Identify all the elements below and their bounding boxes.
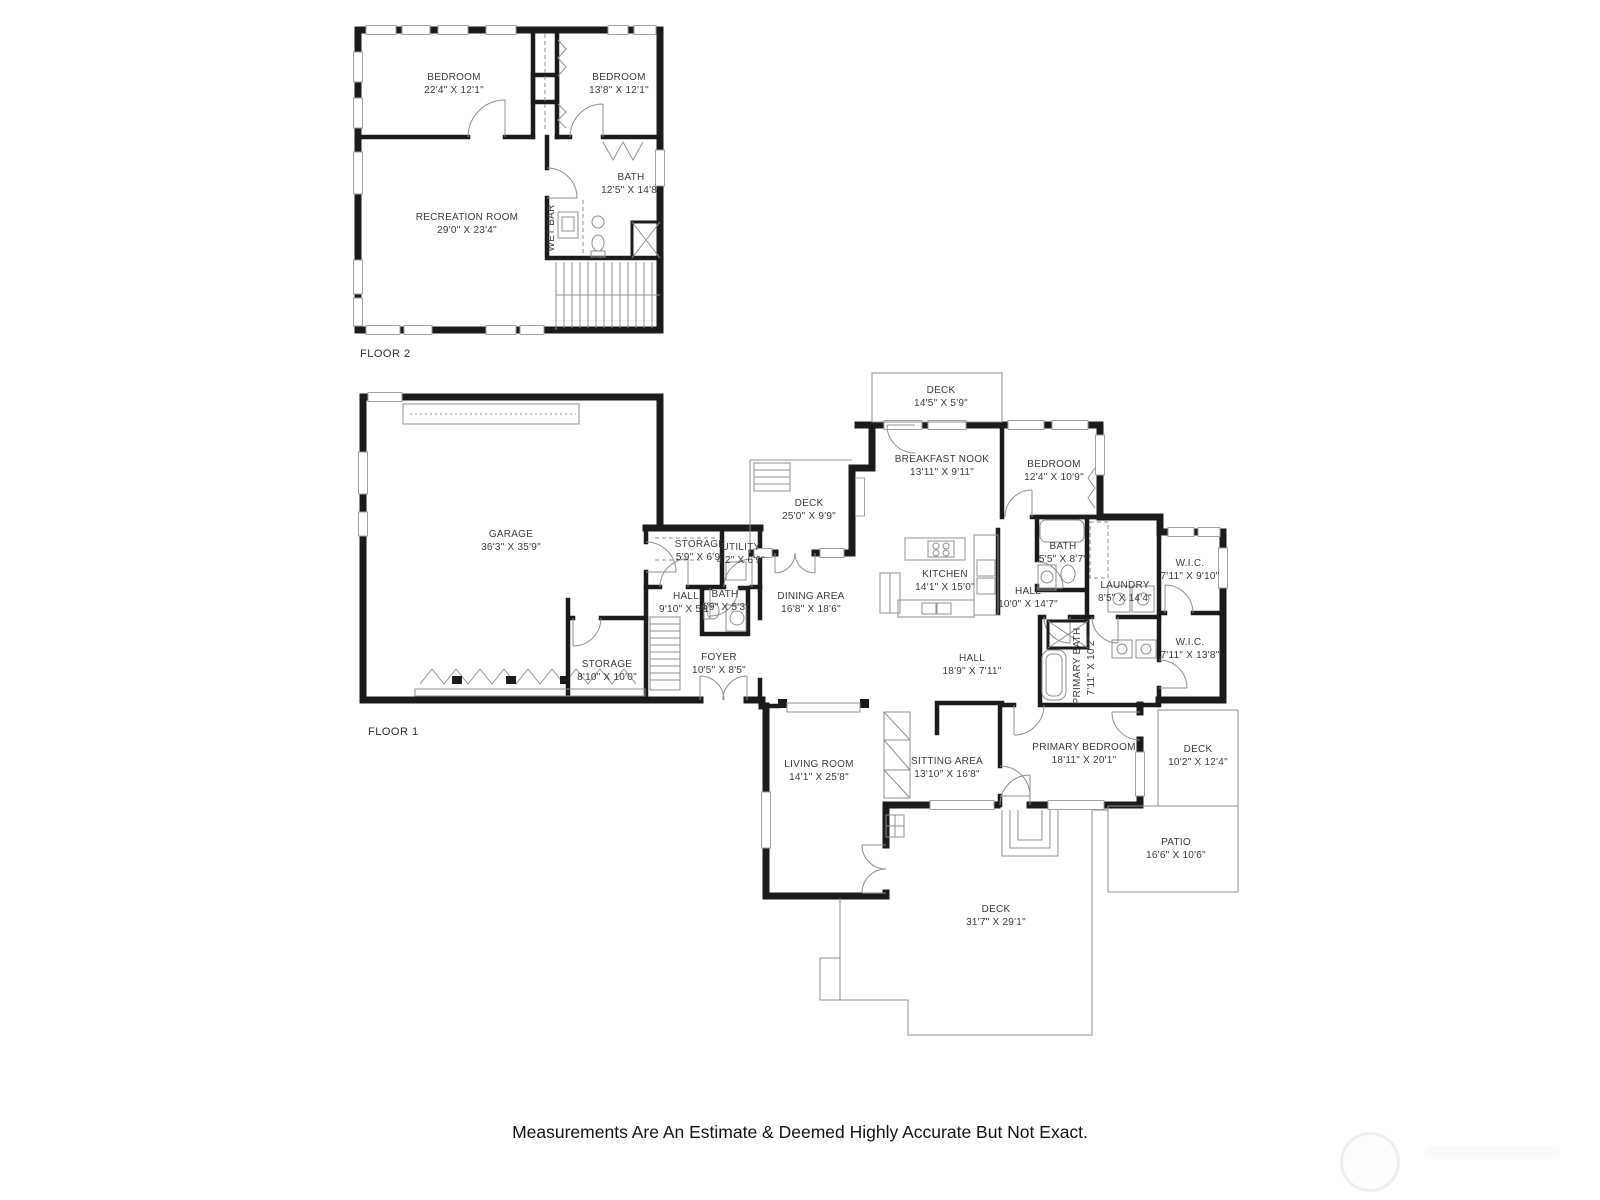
- room-label-bath-hall: BATH5'5" X 8'7": [1039, 541, 1087, 565]
- svg-text:7'11" X 9'10": 7'11" X 9'10": [1160, 571, 1219, 582]
- svg-text:18'11" X 20'1": 18'11" X 20'1": [1052, 755, 1117, 766]
- room-label-bedroom-large: BEDROOM22'4" X 12'1": [424, 72, 484, 96]
- svg-text:22'4" X 12'1": 22'4" X 12'1": [424, 85, 484, 96]
- room-label-primary-bath: PRIMARY BATH7'11" X 10'2": [1072, 628, 1097, 705]
- svg-text:PATIO: PATIO: [1161, 837, 1191, 848]
- room-label-primary-bedroom: PRIMARY BEDROOM18'11" X 20'1": [1032, 742, 1135, 766]
- svg-text:36'3" X 35'9": 36'3" X 35'9": [481, 542, 541, 553]
- floor2-label: FLOOR 2: [360, 348, 411, 360]
- room-label-foyer: FOYER10'5" X 8'5": [692, 652, 746, 676]
- room-label-wic-bottom: W.I.C.7'11" X 13'8": [1160, 637, 1219, 661]
- floor1-label: FLOOR 1: [368, 726, 419, 738]
- svg-text:7'11" X 10'2": 7'11" X 10'2": [1086, 636, 1097, 695]
- room-label-storage-garage: STORAGE8'10" X 10'0": [577, 659, 637, 683]
- room-label-patio: PATIO16'6" X 10'6": [1146, 837, 1206, 861]
- room-label-sitting: SITTING AREA13'10" X 16'8": [911, 756, 983, 780]
- room-label-kitchen: KITCHEN14'1" X 15'0": [915, 569, 975, 593]
- svg-text:UTILITY: UTILITY: [722, 542, 761, 553]
- svg-text:PRIMARY BATH: PRIMARY BATH: [1072, 628, 1083, 705]
- svg-text:HALL: HALL: [673, 591, 699, 602]
- svg-text:10'2" X 12'4": 10'2" X 12'4": [1168, 757, 1228, 768]
- svg-text:13'11" X 9'11": 13'11" X 9'11": [910, 467, 974, 478]
- svg-text:8'5" X 14'4": 8'5" X 14'4": [1098, 593, 1152, 604]
- room-label-garage: GARAGE36'3" X 35'9": [481, 529, 541, 553]
- svg-text:RECREATION ROOM: RECREATION ROOM: [416, 212, 518, 223]
- svg-text:SITTING AREA: SITTING AREA: [911, 756, 983, 767]
- svg-text:HALL: HALL: [959, 653, 985, 664]
- svg-text:BATH: BATH: [1050, 541, 1077, 552]
- room-label-recreation: RECREATION ROOM29'0" X 23'4": [416, 212, 518, 236]
- room-label-deck-mid: DECK25'0" X 9'9": [782, 498, 836, 522]
- svg-text:7'11" X 13'8": 7'11" X 13'8": [1160, 650, 1219, 661]
- svg-text:10'5" X 8'5": 10'5" X 8'5": [692, 665, 746, 676]
- svg-text:29'0" X 23'4": 29'0" X 23'4": [437, 225, 497, 236]
- floor2-room-labels: BEDROOM22'4" X 12'1" BEDROOM13'8" X 12'1…: [360, 72, 661, 360]
- room-label-bath-powder: BATH4'9" X 5'3": [701, 589, 749, 613]
- room-label-living: LIVING ROOM14'1" X 25'8": [784, 759, 853, 783]
- svg-text:13'8" X 12'1": 13'8" X 12'1": [589, 85, 649, 96]
- room-label-dining: DINING AREA16'8" X 18'6": [777, 591, 844, 615]
- svg-text:16'8" X 18'6": 16'8" X 18'6": [781, 604, 841, 615]
- svg-text:W.I.C.: W.I.C.: [1176, 558, 1205, 569]
- svg-text:12'5" X 14'8": 12'5" X 14'8": [601, 185, 661, 196]
- svg-text:10'0" X 14'7": 10'0" X 14'7": [998, 599, 1058, 610]
- svg-text:BATH: BATH: [712, 589, 739, 600]
- svg-text:DECK: DECK: [795, 498, 824, 509]
- svg-text:16'6" X 10'6": 16'6" X 10'6": [1146, 850, 1206, 861]
- svg-text:4'2" X 6'9": 4'2" X 6'9": [717, 555, 765, 566]
- svg-text:25'0" X 9'9": 25'0" X 9'9": [782, 511, 836, 522]
- floor-plan-canvas: BEDROOM22'4" X 12'1" BEDROOM13'8" X 12'1…: [0, 0, 1600, 1200]
- room-label-deck-top: DECK14'5" X 5'9": [914, 385, 968, 409]
- svg-text:14'5" X 5'9": 14'5" X 5'9": [914, 398, 968, 409]
- room-label-laundry: LAUNDRY8'5" X 14'4": [1098, 580, 1152, 604]
- room-label-bedroom-f1: BEDROOM12'4" X 10'9": [1024, 459, 1084, 483]
- watermark-text: [1424, 1146, 1560, 1159]
- room-label-breakfast-nook: BREAKFAST NOOK13'11" X 9'11": [895, 454, 990, 478]
- svg-text:12'4" X 10'9": 12'4" X 10'9": [1024, 472, 1084, 483]
- svg-text:BEDROOM: BEDROOM: [427, 72, 480, 83]
- svg-text:31'7" X 29'1": 31'7" X 29'1": [966, 917, 1026, 928]
- svg-text:PRIMARY BEDROOM: PRIMARY BEDROOM: [1032, 742, 1135, 753]
- watermark-logo-icon: [1340, 1132, 1400, 1192]
- svg-text:18'9" X 7'11": 18'9" X 7'11": [942, 666, 1001, 677]
- svg-text:14'1" X 15'0": 14'1" X 15'0": [915, 582, 975, 593]
- svg-text:BREAKFAST NOOK: BREAKFAST NOOK: [895, 454, 990, 465]
- svg-text:8'10" X 10'0": 8'10" X 10'0": [577, 672, 637, 683]
- svg-text:DECK: DECK: [982, 904, 1011, 915]
- svg-text:GARAGE: GARAGE: [489, 529, 533, 540]
- room-label-bath-f2: BATH12'5" X 14'8": [601, 172, 661, 196]
- floor-plan-page: BEDROOM22'4" X 12'1" BEDROOM13'8" X 12'1…: [0, 0, 1600, 1200]
- svg-text:HALL: HALL: [1015, 586, 1041, 597]
- svg-text:STORAGE: STORAGE: [675, 539, 726, 550]
- svg-text:13'10" X 16'8": 13'10" X 16'8": [914, 769, 980, 780]
- svg-text:WET BAR: WET BAR: [546, 204, 557, 251]
- room-label-bedroom-small: BEDROOM13'8" X 12'1": [589, 72, 649, 96]
- svg-text:DINING AREA: DINING AREA: [777, 591, 844, 602]
- room-label-wet-bar: WET BAR: [546, 204, 557, 251]
- svg-text:14'1" X 25'8": 14'1" X 25'8": [789, 772, 849, 783]
- room-label-hall-large: HALL18'9" X 7'11": [942, 653, 1001, 677]
- svg-text:BEDROOM: BEDROOM: [592, 72, 645, 83]
- svg-text:BATH: BATH: [618, 172, 645, 183]
- svg-text:DECK: DECK: [927, 385, 956, 396]
- room-label-wic-top: W.I.C.7'11" X 9'10": [1160, 558, 1219, 582]
- room-label-deck-large: DECK31'7" X 29'1": [966, 904, 1026, 928]
- room-label-deck-right: DECK10'2" X 12'4": [1168, 744, 1228, 768]
- svg-text:KITCHEN: KITCHEN: [922, 569, 968, 580]
- svg-text:FOYER: FOYER: [701, 652, 737, 663]
- svg-text:LIVING ROOM: LIVING ROOM: [784, 759, 853, 770]
- svg-text:LAUNDRY: LAUNDRY: [1100, 580, 1149, 591]
- svg-text:STORAGE: STORAGE: [582, 659, 633, 670]
- svg-text:DECK: DECK: [1184, 744, 1213, 755]
- svg-text:4'9" X 5'3": 4'9" X 5'3": [701, 602, 749, 613]
- svg-text:5'5" X 8'7": 5'5" X 8'7": [1039, 554, 1087, 565]
- svg-text:W.I.C.: W.I.C.: [1176, 637, 1205, 648]
- svg-text:BEDROOM: BEDROOM: [1027, 459, 1080, 470]
